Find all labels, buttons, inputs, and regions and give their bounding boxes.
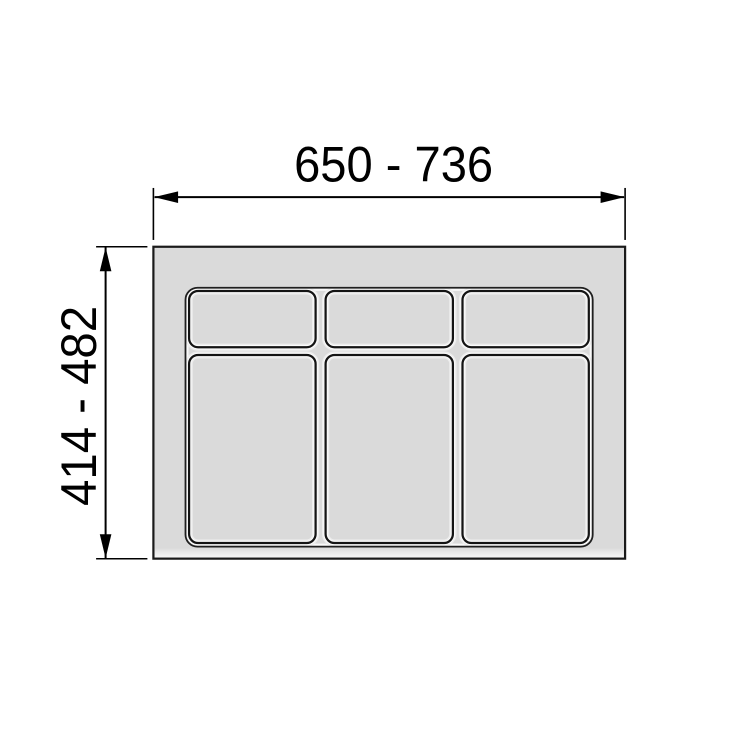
svg-text:414 - 482: 414 - 482 bbox=[51, 306, 107, 506]
svg-text:650 - 736: 650 - 736 bbox=[294, 136, 493, 192]
